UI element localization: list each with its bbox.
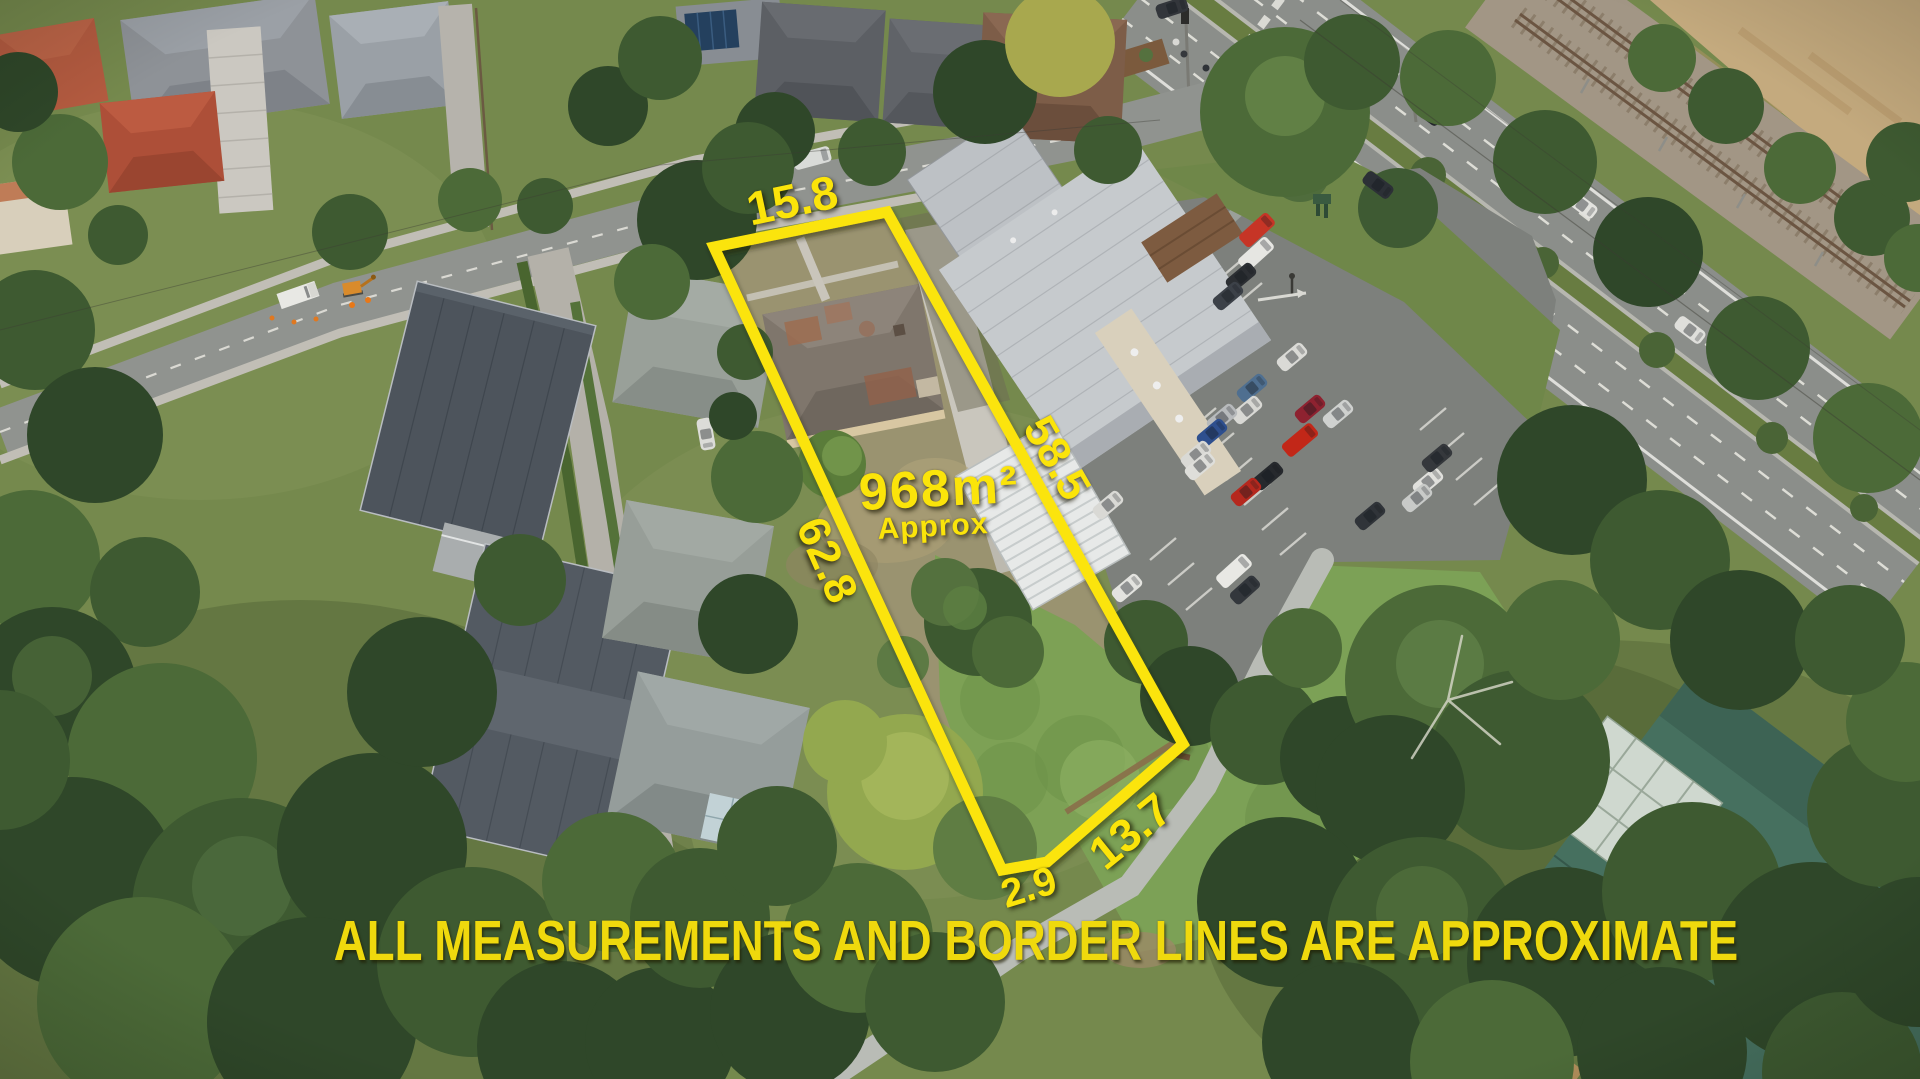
area-approx-label: Approx (877, 507, 990, 547)
disclaimer-text: ALL MEASUREMENTS AND BORDER LINES ARE AP… (334, 908, 1738, 974)
aerial-property-photo: 15.8 58.5 62.8 13.7 2.9 968m² Approx ALL… (0, 0, 1920, 1079)
